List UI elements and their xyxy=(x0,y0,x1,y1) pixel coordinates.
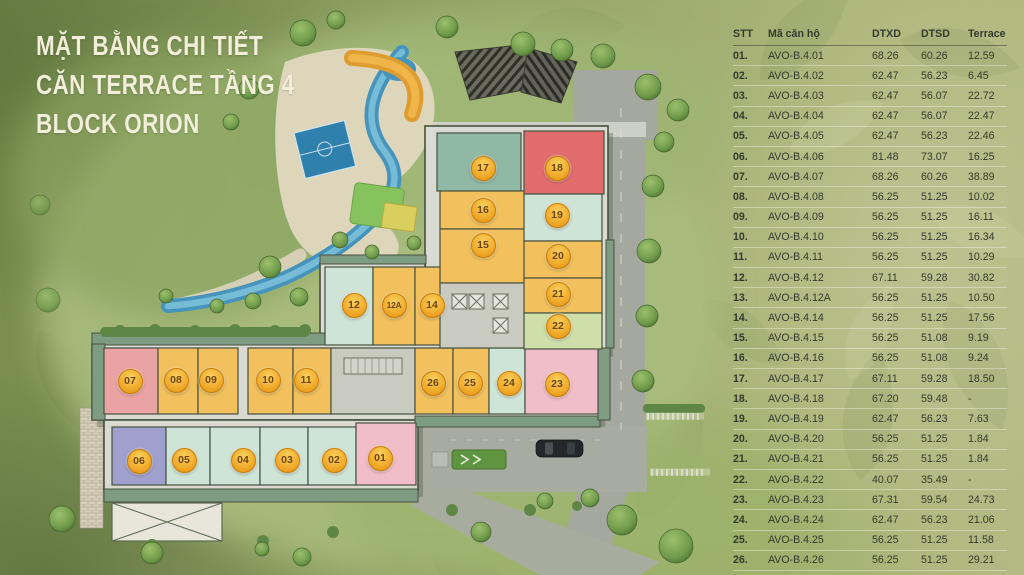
col-code: Mã căn hộ xyxy=(768,28,870,40)
cell-code: AVO-B.4.18 xyxy=(768,393,870,405)
cell-code: AVO-B.4.21 xyxy=(768,453,870,465)
cell-dtsd: 59.28 xyxy=(921,373,966,385)
cell-dtxd: 56.25 xyxy=(872,231,919,243)
cell-stt: 22. xyxy=(733,474,766,486)
table-row: 26.AVO-B.4.2656.2551.2529.21 xyxy=(733,551,1007,571)
cell-dtsd: 51.25 xyxy=(921,292,966,304)
cell-terrace: - xyxy=(968,393,1007,405)
cell-dtxd: 56.25 xyxy=(872,534,919,546)
table-row: 18.AVO-B.4.1867.2059.48- xyxy=(733,389,1007,409)
unit-badge-04: 04 xyxy=(231,448,256,473)
title-line-3: BLOCK ORION xyxy=(36,104,295,143)
cell-stt: 01. xyxy=(733,50,766,62)
cell-dtsd: 59.48 xyxy=(921,393,966,405)
cell-stt: 23. xyxy=(733,494,766,506)
table-row: 12.AVO-B.4.1267.1159.2830.82 xyxy=(733,268,1007,288)
unit-badge-23: 23 xyxy=(545,372,570,397)
cell-code: AVO-B.4.23 xyxy=(768,494,870,506)
table-row: 05.AVO-B.4.0562.4756.2322.46 xyxy=(733,127,1007,147)
cell-stt: 17. xyxy=(733,373,766,385)
cell-dtxd: 67.11 xyxy=(872,373,919,385)
cell-dtsd: 51.25 xyxy=(921,433,966,445)
cell-stt: 15. xyxy=(733,332,766,344)
unit-badge-17: 17 xyxy=(471,156,496,181)
cell-dtxd: 40.07 xyxy=(872,474,919,486)
table-row: 02.AVO-B.4.0262.4756.236.45 xyxy=(733,66,1007,86)
cell-dtxd: 56.25 xyxy=(872,554,919,566)
cell-terrace: 10.50 xyxy=(968,292,1007,304)
title-line-1: MẶT BẰNG CHI TIẾT xyxy=(36,26,295,65)
table-row: 15.AVO-B.4.1556.2551.089.19 xyxy=(733,329,1007,349)
unit-badge-12A: 12A xyxy=(382,293,407,318)
cell-terrace: 22.72 xyxy=(968,90,1007,102)
unit-badge-15: 15 xyxy=(471,233,496,258)
cell-code: AVO-B.4.08 xyxy=(768,191,870,203)
cell-code: AVO-B.4.15 xyxy=(768,332,870,344)
cell-dtxd: 67.11 xyxy=(872,272,919,284)
unit-badge-22: 22 xyxy=(546,314,571,339)
cell-dtxd: 56.25 xyxy=(872,433,919,445)
unit-badge-16: 16 xyxy=(471,198,496,223)
cell-code: AVO-B.4.11 xyxy=(768,251,870,263)
cell-terrace: 7.63 xyxy=(968,413,1007,425)
cell-dtxd: 62.47 xyxy=(872,130,919,142)
cell-dtsd: 51.08 xyxy=(921,352,966,364)
unit-badge-21: 21 xyxy=(546,282,571,307)
cell-dtsd: 73.07 xyxy=(921,151,966,163)
cell-terrace: 16.25 xyxy=(968,151,1007,163)
table-row: 01.AVO-B.4.0168.2660.2612.59 xyxy=(733,46,1007,66)
table-row: 11.AVO-B.4.1156.2551.2510.29 xyxy=(733,248,1007,268)
cell-stt: 04. xyxy=(733,110,766,122)
cell-dtxd: 56.25 xyxy=(872,191,919,203)
cell-stt: 13. xyxy=(733,292,766,304)
cell-stt: 12. xyxy=(733,272,766,284)
cell-dtsd: 56.23 xyxy=(921,514,966,526)
cell-terrace: 17.56 xyxy=(968,312,1007,324)
cell-terrace: 12.59 xyxy=(968,50,1007,62)
cell-dtxd: 68.26 xyxy=(872,50,919,62)
unit-badge-14: 14 xyxy=(420,293,445,318)
table-row: 06.AVO-B.4.0681.4873.0716.25 xyxy=(733,147,1007,167)
unit-badge-03: 03 xyxy=(275,448,300,473)
cell-terrace: 16.11 xyxy=(968,211,1007,223)
unit-badge-06: 06 xyxy=(127,449,152,474)
cell-stt: 09. xyxy=(733,211,766,223)
cell-stt: 16. xyxy=(733,352,766,364)
table-row: 20.AVO-B.4.2056.2551.251.84 xyxy=(733,430,1007,450)
cell-terrace: 30.82 xyxy=(968,272,1007,284)
cell-code: AVO-B.4.25 xyxy=(768,534,870,546)
col-terrace: Terrace xyxy=(968,28,1007,40)
cell-code: AVO-B.4.04 xyxy=(768,110,870,122)
cell-dtxd: 62.47 xyxy=(872,70,919,82)
cell-terrace: 21.06 xyxy=(968,514,1007,526)
table-row: 07.AVO-B.4.0768.2660.2638.89 xyxy=(733,167,1007,187)
cell-dtsd: 59.28 xyxy=(921,272,966,284)
table-row: 08.AVO-B.4.0856.2551.2510.02 xyxy=(733,187,1007,207)
unit-badge-18: 18 xyxy=(545,156,570,181)
unit-badge-10: 10 xyxy=(256,368,281,393)
cell-dtxd: 62.47 xyxy=(872,110,919,122)
cell-terrace: - xyxy=(968,474,1007,486)
cell-code: AVO-B.4.05 xyxy=(768,130,870,142)
cell-dtsd: 51.08 xyxy=(921,332,966,344)
cell-stt: 24. xyxy=(733,514,766,526)
cell-terrace: 10.29 xyxy=(968,251,1007,263)
cell-code: AVO-B.4.09 xyxy=(768,211,870,223)
cell-terrace: 9.24 xyxy=(968,352,1007,364)
cell-stt: 03. xyxy=(733,90,766,102)
table-row: 03.AVO-B.4.0362.4756.0722.72 xyxy=(733,86,1007,106)
cell-terrace: 24.73 xyxy=(968,494,1007,506)
cell-terrace: 10.02 xyxy=(968,191,1007,203)
cell-code: AVO-B.4.26 xyxy=(768,554,870,566)
cell-dtsd: 51.25 xyxy=(921,534,966,546)
cell-code: AVO-B.4.06 xyxy=(768,151,870,163)
col-dtxd: DTXD xyxy=(872,28,919,40)
table-row: 13.AVO-B.4.12A56.2551.2510.50 xyxy=(733,288,1007,308)
cell-dtxd: 62.47 xyxy=(872,514,919,526)
cell-dtsd: 56.23 xyxy=(921,130,966,142)
cell-stt: 06. xyxy=(733,151,766,163)
col-stt: STT xyxy=(733,28,766,40)
cell-code: AVO-B.4.02 xyxy=(768,70,870,82)
cell-code: AVO-B.4.24 xyxy=(768,514,870,526)
cell-code: AVO-B.4.16 xyxy=(768,352,870,364)
cell-stt: 19. xyxy=(733,413,766,425)
page-title: MẶT BẰNG CHI TIẾT CĂN TERRACE TẦNG 4 BLO… xyxy=(36,26,295,143)
cell-code: AVO-B.4.17 xyxy=(768,373,870,385)
unit-badge-11: 11 xyxy=(294,368,319,393)
cell-stt: 11. xyxy=(733,251,766,263)
cell-dtxd: 67.31 xyxy=(872,494,919,506)
table-row: 14.AVO-B.4.1456.2551.2517.56 xyxy=(733,308,1007,328)
cell-dtsd: 51.25 xyxy=(921,231,966,243)
cell-terrace: 38.89 xyxy=(968,171,1007,183)
unit-badge-19: 19 xyxy=(545,203,570,228)
cell-stt: 18. xyxy=(733,393,766,405)
cell-dtsd: 51.25 xyxy=(921,312,966,324)
cell-stt: 10. xyxy=(733,231,766,243)
table-row: 10.AVO-B.4.1056.2551.2516.34 xyxy=(733,228,1007,248)
table-row: 25.AVO-B.4.2556.2551.2511.58 xyxy=(733,531,1007,551)
unit-badge-25: 25 xyxy=(458,371,483,396)
cell-dtxd: 68.26 xyxy=(872,171,919,183)
cell-code: AVO-B.4.12A xyxy=(768,292,870,304)
unit-badge-05: 05 xyxy=(172,448,197,473)
cell-dtxd: 56.25 xyxy=(872,332,919,344)
unit-badge-24: 24 xyxy=(497,371,522,396)
unit-area-table: STT Mã căn hộ DTXD DTSD Terrace 01.AVO-B… xyxy=(733,22,1007,571)
table-row: 16.AVO-B.4.1656.2551.089.24 xyxy=(733,349,1007,369)
cell-terrace: 16.34 xyxy=(968,231,1007,243)
cell-dtxd: 56.25 xyxy=(872,453,919,465)
cell-code: AVO-B.4.10 xyxy=(768,231,870,243)
col-dtsd: DTSD xyxy=(921,28,966,40)
table-row: 09.AVO-B.4.0956.2551.2516.11 xyxy=(733,208,1007,228)
cell-terrace: 11.58 xyxy=(968,534,1007,546)
cell-dtsd: 56.23 xyxy=(921,413,966,425)
cell-dtxd: 62.47 xyxy=(872,413,919,425)
cell-terrace: 22.46 xyxy=(968,130,1007,142)
cell-code: AVO-B.4.14 xyxy=(768,312,870,324)
cell-dtxd: 56.25 xyxy=(872,292,919,304)
cell-code: AVO-B.4.12 xyxy=(768,272,870,284)
cell-stt: 05. xyxy=(733,130,766,142)
cell-dtxd: 62.47 xyxy=(872,90,919,102)
cell-dtsd: 56.07 xyxy=(921,90,966,102)
cell-dtsd: 56.07 xyxy=(921,110,966,122)
unit-badge-12: 12 xyxy=(342,293,367,318)
cell-dtsd: 60.26 xyxy=(921,171,966,183)
table-row: 22.AVO-B.4.2240.0735.49- xyxy=(733,470,1007,490)
table-row: 17.AVO-B.4.1767.1159.2818.50 xyxy=(733,369,1007,389)
cell-dtsd: 35.49 xyxy=(921,474,966,486)
cell-dtxd: 81.48 xyxy=(872,151,919,163)
table-row: 04.AVO-B.4.0462.4756.0722.47 xyxy=(733,107,1007,127)
cell-dtsd: 60.26 xyxy=(921,50,966,62)
cell-dtsd: 51.25 xyxy=(921,191,966,203)
table-row: 24.AVO-B.4.2462.4756.2321.06 xyxy=(733,510,1007,530)
cell-dtsd: 51.25 xyxy=(921,554,966,566)
cell-stt: 25. xyxy=(733,534,766,546)
cell-code: AVO-B.4.03 xyxy=(768,90,870,102)
cell-dtsd: 59.54 xyxy=(921,494,966,506)
cell-dtxd: 56.25 xyxy=(872,211,919,223)
table-row: 19.AVO-B.4.1962.4756.237.63 xyxy=(733,409,1007,429)
cell-dtxd: 67.20 xyxy=(872,393,919,405)
table-body: 01.AVO-B.4.0168.2660.2612.5902.AVO-B.4.0… xyxy=(733,46,1007,571)
cell-dtxd: 56.25 xyxy=(872,352,919,364)
unit-badge-20: 20 xyxy=(546,244,571,269)
unit-badge-26: 26 xyxy=(421,371,446,396)
unit-badge-07: 07 xyxy=(118,369,143,394)
cell-code: AVO-B.4.20 xyxy=(768,433,870,445)
cell-stt: 07. xyxy=(733,171,766,183)
cell-terrace: 29.21 xyxy=(968,554,1007,566)
unit-badge-09: 09 xyxy=(199,368,224,393)
cell-code: AVO-B.4.01 xyxy=(768,50,870,62)
cell-stt: 08. xyxy=(733,191,766,203)
table-row: 23.AVO-B.4.2367.3159.5424.73 xyxy=(733,490,1007,510)
page: 01020304050607080910111212A1415161718192… xyxy=(0,0,1024,575)
table-row: 21.AVO-B.4.2156.2551.251.84 xyxy=(733,450,1007,470)
cell-stt: 14. xyxy=(733,312,766,324)
unit-badge-08: 08 xyxy=(164,368,189,393)
cell-dtsd: 51.25 xyxy=(921,211,966,223)
cell-code: AVO-B.4.22 xyxy=(768,474,870,486)
cell-terrace: 18.50 xyxy=(968,373,1007,385)
cell-code: AVO-B.4.19 xyxy=(768,413,870,425)
cell-terrace: 1.84 xyxy=(968,453,1007,465)
cell-terrace: 22.47 xyxy=(968,110,1007,122)
cell-dtxd: 56.25 xyxy=(872,251,919,263)
cell-dtxd: 56.25 xyxy=(872,312,919,324)
unit-badge-01: 01 xyxy=(368,446,393,471)
cell-terrace: 9.19 xyxy=(968,332,1007,344)
cell-dtsd: 51.25 xyxy=(921,251,966,263)
cell-code: AVO-B.4.07 xyxy=(768,171,870,183)
cell-terrace: 6.45 xyxy=(968,70,1007,82)
cell-stt: 20. xyxy=(733,433,766,445)
cell-dtsd: 51.25 xyxy=(921,453,966,465)
cell-stt: 21. xyxy=(733,453,766,465)
unit-badge-02: 02 xyxy=(322,448,347,473)
cell-stt: 02. xyxy=(733,70,766,82)
cell-stt: 26. xyxy=(733,554,766,566)
cell-dtsd: 56.23 xyxy=(921,70,966,82)
table-header: STT Mã căn hộ DTXD DTSD Terrace xyxy=(733,22,1007,46)
cell-terrace: 1.84 xyxy=(968,433,1007,445)
title-line-2: CĂN TERRACE TẦNG 4 xyxy=(36,65,295,104)
